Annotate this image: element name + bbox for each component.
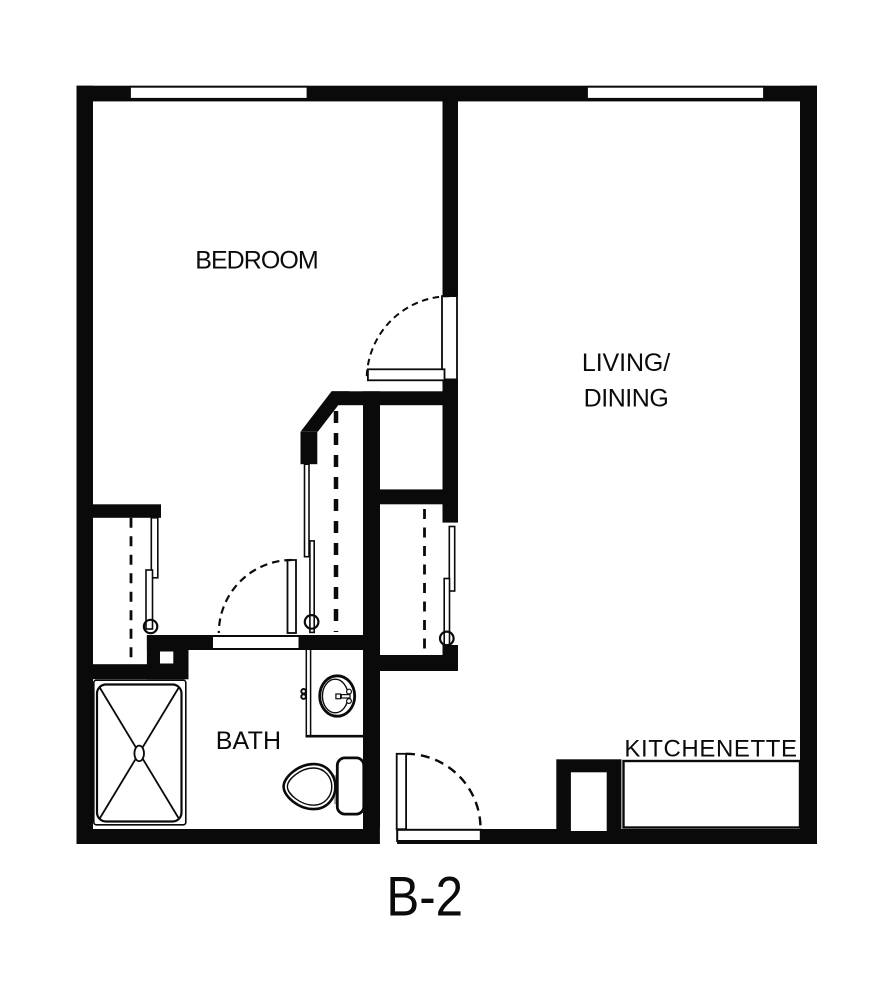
svg-text:B-2: B-2 (386, 866, 463, 929)
svg-text:KITCHENETTE: KITCHENETTE (624, 736, 797, 763)
svg-text:BATH: BATH (216, 727, 282, 755)
svg-text:LIVING/: LIVING/ (582, 349, 670, 377)
svg-text:DINING: DINING (584, 385, 669, 413)
svg-text:BEDROOM: BEDROOM (195, 247, 318, 275)
